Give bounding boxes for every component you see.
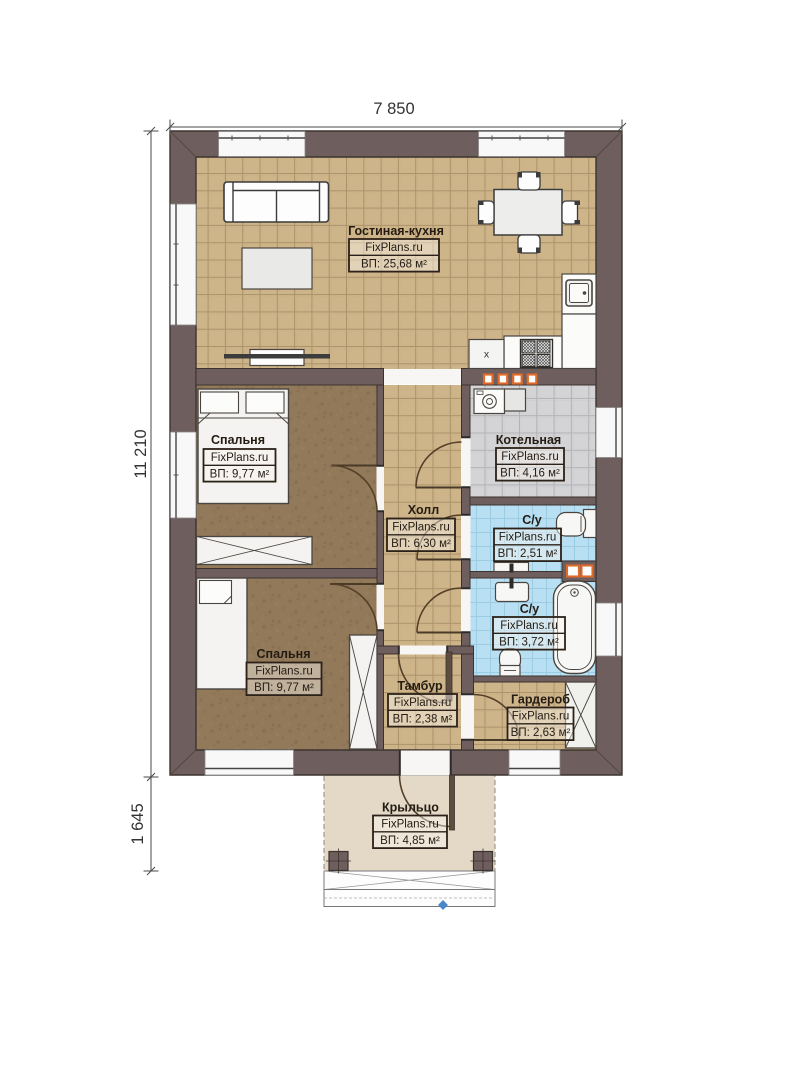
svg-text:ВП: 4,85 м²: ВП: 4,85 м² bbox=[380, 835, 440, 847]
svg-text:FixPlans.ru: FixPlans.ru bbox=[500, 620, 558, 632]
svg-text:FixPlans.ru: FixPlans.ru bbox=[381, 819, 439, 831]
svg-text:1 645: 1 645 bbox=[129, 803, 147, 844]
svg-text:ВП: 25,68 м²: ВП: 25,68 м² bbox=[361, 259, 427, 271]
svg-text:С/у: С/у bbox=[522, 513, 542, 527]
svg-text:ВП: 4,16 м²: ВП: 4,16 м² bbox=[500, 468, 560, 480]
svg-text:7 850: 7 850 bbox=[373, 100, 414, 118]
svg-text:ВП: 9,77 м²: ВП: 9,77 м² bbox=[254, 682, 314, 694]
svg-text:FixPlans.ru: FixPlans.ru bbox=[394, 697, 452, 709]
svg-text:Тамбур: Тамбур bbox=[397, 679, 443, 693]
svg-text:FixPlans.ru: FixPlans.ru bbox=[365, 242, 423, 254]
svg-text:С/у: С/у bbox=[520, 602, 540, 616]
svg-text:Спальня: Спальня bbox=[211, 433, 265, 447]
svg-text:Гардероб: Гардероб bbox=[511, 693, 570, 707]
svg-text:Гостиная-кухня: Гостиная-кухня bbox=[348, 224, 444, 238]
svg-text:FixPlans.ru: FixPlans.ru bbox=[255, 666, 313, 678]
svg-text:FixPlans.ru: FixPlans.ru bbox=[211, 452, 269, 464]
svg-text:ВП: 9,77 м²: ВП: 9,77 м² bbox=[210, 469, 270, 481]
svg-text:FixPlans.ru: FixPlans.ru bbox=[499, 532, 557, 544]
svg-text:FixPlans.ru: FixPlans.ru bbox=[501, 451, 559, 463]
svg-text:ВП: 3,72 м²: ВП: 3,72 м² bbox=[499, 637, 559, 649]
svg-text:Крыльцо: Крыльцо bbox=[382, 801, 439, 815]
svg-text:ВП: 2,51 м²: ВП: 2,51 м² bbox=[498, 548, 558, 560]
svg-text:ВП: 2,63 м²: ВП: 2,63 м² bbox=[511, 727, 571, 739]
svg-text:Спальня: Спальня bbox=[257, 647, 311, 661]
svg-text:FixPlans.ru: FixPlans.ru bbox=[512, 711, 570, 723]
svg-text:11 210: 11 210 bbox=[132, 429, 150, 478]
svg-text:FixPlans.ru: FixPlans.ru bbox=[392, 522, 450, 534]
svg-text:ВП: 2,38 м²: ВП: 2,38 м² bbox=[393, 714, 453, 726]
svg-text:x: x bbox=[484, 349, 490, 361]
svg-text:ВП: 6,30 м²: ВП: 6,30 м² bbox=[391, 538, 451, 550]
svg-text:Холл: Холл bbox=[408, 503, 439, 517]
svg-text:Котельная: Котельная bbox=[496, 433, 561, 447]
